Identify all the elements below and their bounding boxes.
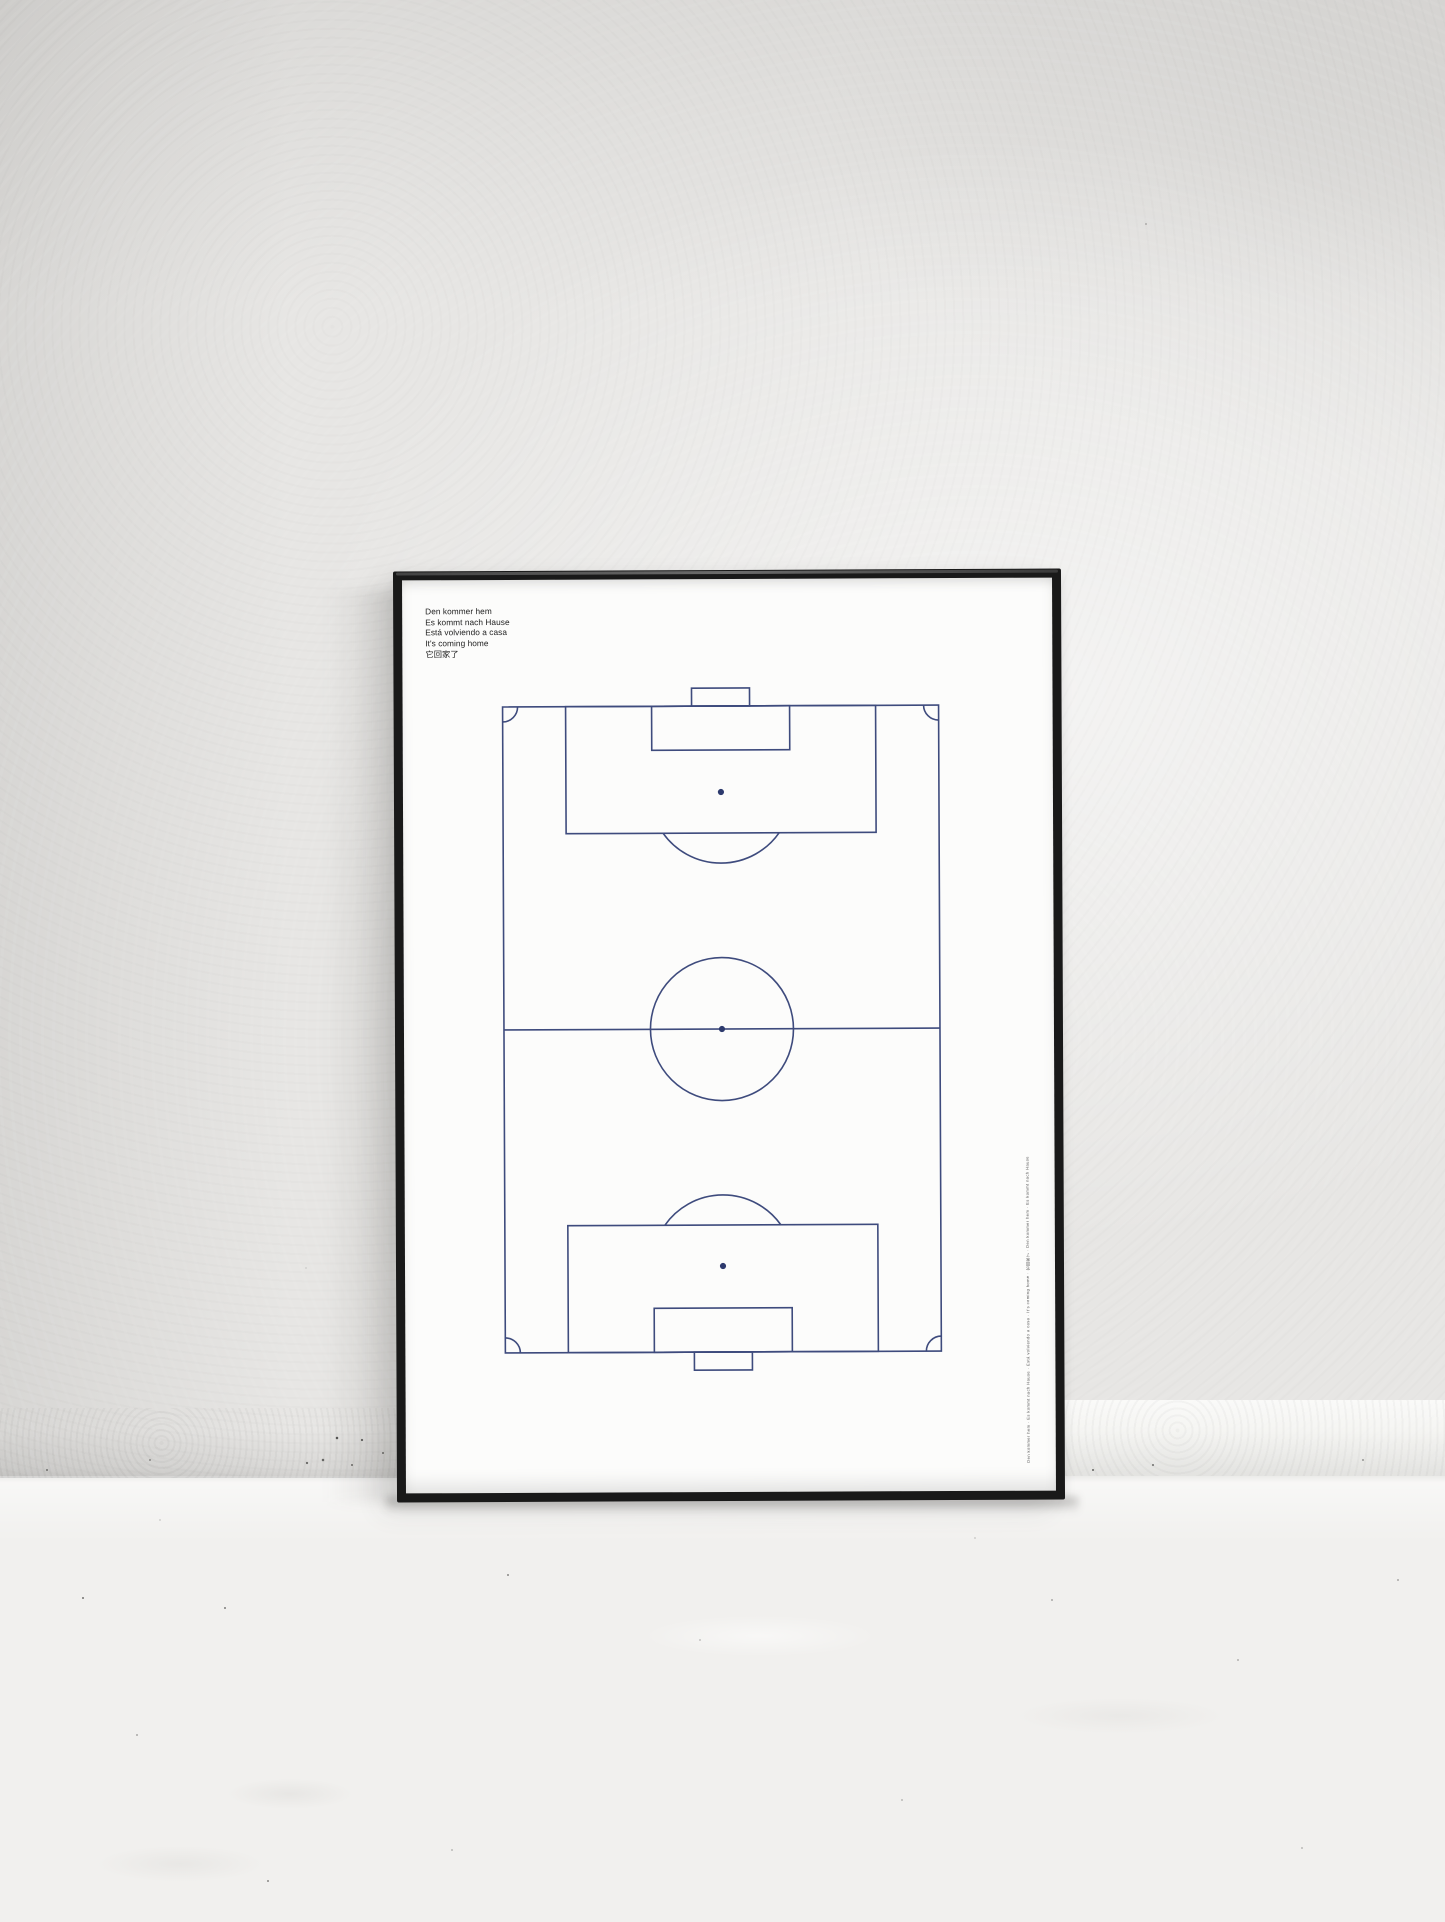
penalty-arc-top <box>663 833 779 864</box>
goal-bottom <box>694 1352 752 1370</box>
frame-top-edge-highlight <box>396 570 1058 576</box>
scene: Den kommer hem Es kommt nach Hause Está … <box>0 0 1445 1922</box>
goal-top <box>691 688 749 706</box>
penalty-area-top <box>566 705 877 833</box>
penalty-spot-top <box>718 789 724 795</box>
poster-frame: Den kommer hem Es kommt nach Hause Está … <box>393 569 1065 1503</box>
wall-base-rough-plaster-left <box>0 1408 404 1478</box>
goal-area-bottom <box>654 1308 792 1353</box>
football-pitch-diagram <box>402 578 1056 1494</box>
concrete-floor <box>0 1476 1445 1922</box>
frame-cast-shadow-left <box>326 590 398 1502</box>
corner-arc-top-left <box>503 707 518 722</box>
vertical-microtext: Den kommer hem · Es kommt nach Hause · E… <box>1024 1157 1032 1463</box>
penalty-arc-bottom <box>665 1195 781 1226</box>
penalty-area-bottom <box>568 1224 879 1352</box>
center-spot <box>719 1026 725 1032</box>
corner-arc-bottom-left <box>505 1338 520 1353</box>
wall-base-rough-plaster-right <box>1063 1400 1445 1476</box>
penalty-spot-bottom <box>720 1263 726 1269</box>
goal-area-top <box>652 706 790 751</box>
corner-arc-top-right <box>924 705 939 720</box>
poster-sheet: Den kommer hem Es kommt nach Hause Está … <box>402 578 1056 1494</box>
corner-arc-bottom-right <box>926 1336 941 1351</box>
